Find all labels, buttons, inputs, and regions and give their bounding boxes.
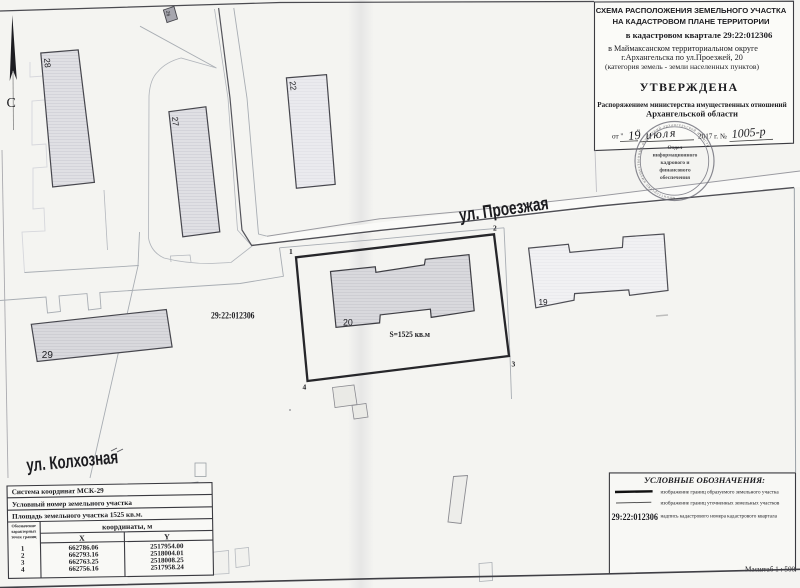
svg-text:29: 29 [42, 350, 54, 361]
svg-text:Система координат МСК-29: Система координат МСК-29 [12, 487, 105, 497]
svg-text:29:22:012306: 29:22:012306 [211, 312, 255, 322]
svg-text:координаты, м: координаты, м [102, 522, 152, 532]
svg-text:НА КАДАСТРОВОМ ПЛАНЕ ТЕРРИТОРИ: НА КАДАСТРОВОМ ПЛАНЕ ТЕРРИТОРИИ [612, 17, 770, 26]
svg-text:1005-р: 1005-р [731, 124, 766, 141]
svg-text:г.Архангельска по ул.Проезжей,: г.Архангельска по ул.Проезжей, 20 [621, 53, 743, 62]
svg-text:надпись кадастрового номера ка: надпись кадастрового номера кадастрового… [661, 513, 778, 519]
svg-text:2517958.24: 2517958.24 [150, 563, 184, 572]
svg-text:3: 3 [512, 360, 516, 369]
svg-text:28: 28 [42, 58, 53, 69]
svg-text:УТВЕРЖДЕНА: УТВЕРЖДЕНА [640, 80, 739, 94]
svg-text:обеспечения: обеспечения [660, 174, 690, 181]
svg-text:финансового: финансового [659, 167, 691, 174]
svg-text:Отдел: Отдел [668, 145, 683, 151]
svg-text:СХЕМА РАСПОЛОЖЕНИЯ ЗЕМЕЛЬНОГО: СХЕМА РАСПОЛОЖЕНИЯ ЗЕМЕЛЬНОГО УЧАСТКА [596, 6, 787, 15]
svg-text:X: X [79, 534, 85, 543]
svg-text:изображение границ уточненных: изображение границ уточненных земельных … [661, 499, 780, 506]
svg-text:от ": от " [612, 133, 623, 141]
svg-text:Архангельской области: Архангельской области [646, 109, 738, 119]
svg-text:27: 27 [170, 116, 181, 127]
svg-text:22: 22 [288, 80, 299, 91]
svg-text:точек границ: точек границ [11, 534, 37, 539]
svg-text:УСЛОВНЫЕ ОБОЗНАЧЕНИЯ:: УСЛОВНЫЕ ОБОЗНАЧЕНИЯ: [644, 475, 765, 485]
svg-text:кадрового и: кадрового и [660, 160, 689, 166]
svg-text:20: 20 [343, 318, 353, 328]
svg-text:19: 19 [539, 298, 549, 307]
svg-text:С: С [7, 96, 16, 111]
svg-text:(категория земель - земли насе: (категория земель - земли населенных пун… [605, 62, 759, 71]
svg-text:информационного: информационного [653, 152, 698, 159]
svg-text:в Маймаксанском территориально: в Маймаксанском территориальном округе [608, 44, 758, 53]
svg-text:2: 2 [493, 224, 497, 233]
svg-text:": " [637, 129, 640, 137]
svg-text:29:22:012306: 29:22:012306 [612, 512, 659, 522]
svg-text:4: 4 [21, 566, 25, 574]
svg-text:S=1525 кв.м: S=1525 кв.м [390, 330, 431, 339]
svg-text:изображение границ образуемого: изображение границ образуемого земельног… [661, 489, 780, 496]
svg-text:Y: Y [164, 532, 170, 541]
svg-text:4: 4 [303, 383, 307, 392]
svg-text:1: 1 [289, 247, 293, 256]
svg-text:в кадастровом квартале 29:22:0: в кадастровом квартале 29:22:012306 [626, 30, 773, 40]
svg-text:662756.16: 662756.16 [69, 564, 99, 573]
